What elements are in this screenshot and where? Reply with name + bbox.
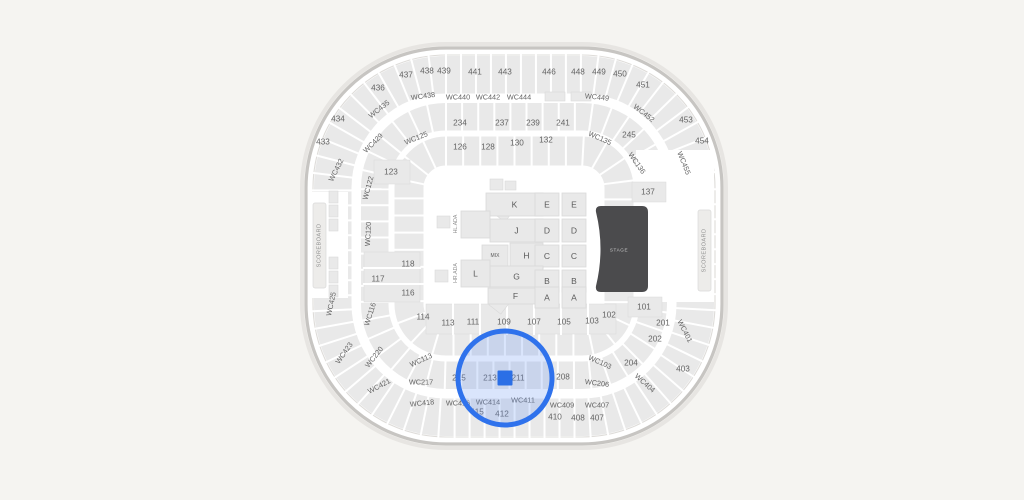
- suite-strip: [329, 271, 338, 283]
- section-label-102[interactable]: 102: [602, 311, 616, 320]
- floor-section-label: G: [513, 272, 520, 282]
- stage-label: STAGE: [610, 248, 628, 253]
- section-label-449[interactable]: 449: [592, 68, 606, 77]
- section-label-454[interactable]: 454: [695, 137, 709, 146]
- section-label-439[interactable]: 439: [437, 67, 451, 76]
- section-label-208[interactable]: 208: [556, 373, 570, 382]
- section-label-202[interactable]: 202: [648, 335, 662, 344]
- floor-section-C[interactable]: C: [562, 245, 586, 267]
- section-label-101[interactable]: 101: [637, 303, 651, 312]
- scoreboard-left-label: SCOREBOARD: [317, 224, 323, 268]
- section-label-113[interactable]: 113: [441, 319, 454, 328]
- floor-section-label: L: [473, 269, 478, 279]
- scoreboard-left: SCOREBOARD: [313, 203, 326, 288]
- ada-left-top-label: HL.ADA: [453, 214, 459, 233]
- suite-strip: [329, 205, 338, 217]
- section-label-118[interactable]: 118: [401, 260, 414, 269]
- floor-section-E[interactable]: E: [562, 193, 586, 216]
- section-label-450[interactable]: 450: [613, 70, 627, 79]
- arena-seatmap[interactable]: STAGE SCOREBOARD SCOREBOARD HL.ADA HR.AD…: [0, 0, 1024, 500]
- section-label-446[interactable]: 446: [542, 68, 556, 77]
- section-label-433[interactable]: 433: [316, 138, 330, 147]
- floor-section-label: D: [544, 226, 550, 236]
- section-label-438[interactable]: 438: [420, 67, 434, 76]
- section-label-WC442[interactable]: WC442: [476, 93, 500, 102]
- floor-section-D[interactable]: D: [535, 219, 559, 242]
- scoreboard-right-label: SCOREBOARD: [702, 229, 708, 273]
- section-label-WC444[interactable]: WC444: [507, 93, 531, 102]
- section-label-234[interactable]: 234: [453, 119, 467, 128]
- section-label-448[interactable]: 448: [571, 68, 585, 77]
- seatmap-canvas[interactable]: STAGE SCOREBOARD SCOREBOARD HL.ADA HR.AD…: [0, 0, 1024, 500]
- section-label-403[interactable]: 403: [676, 365, 690, 374]
- floor-section-C[interactable]: C: [535, 245, 559, 267]
- stage: STAGE: [596, 206, 648, 292]
- suite-strip: [437, 216, 450, 228]
- floor-section-E[interactable]: E: [535, 193, 559, 216]
- section-label-137[interactable]: 137: [641, 188, 655, 197]
- section-label-128[interactable]: 128: [481, 143, 495, 152]
- floor-section-label: E: [544, 200, 550, 210]
- section-label-WC407[interactable]: WC407: [585, 401, 609, 410]
- section-label-WC217[interactable]: WC217: [409, 378, 433, 387]
- section-label-WC120[interactable]: WC120: [363, 222, 373, 247]
- section-label-107[interactable]: 107: [527, 318, 541, 327]
- section-label-436[interactable]: 436: [371, 84, 385, 93]
- floor-section-label: D: [571, 226, 577, 236]
- floor-section-label: A: [571, 293, 577, 303]
- ada-left-bottom-label: HR.ADA: [453, 263, 459, 283]
- floor-section-label: K: [512, 200, 518, 210]
- section-label-239[interactable]: 239: [526, 119, 540, 128]
- floor-section-label: MIX: [491, 253, 501, 259]
- floor-section-label: C: [544, 251, 550, 261]
- section-label-123[interactable]: 123: [384, 168, 398, 177]
- section-label-111[interactable]: 111: [467, 318, 480, 327]
- section-label-WC409[interactable]: WC409: [550, 401, 574, 410]
- selected-section-marker[interactable]: [498, 371, 513, 386]
- floor-section-label: J: [514, 226, 518, 236]
- suite-strip: [505, 181, 516, 190]
- section-label-237[interactable]: 237: [495, 119, 509, 128]
- section-label-437[interactable]: 437: [399, 71, 413, 80]
- suite-strip: [329, 191, 338, 203]
- suite-strip: [545, 92, 565, 101]
- section-label-201[interactable]: 201: [656, 319, 670, 328]
- suite-strip: [490, 179, 503, 190]
- section-label-441[interactable]: 441: [468, 68, 482, 77]
- section-label-245[interactable]: 245: [622, 131, 636, 140]
- floor-section-A[interactable]: A: [562, 287, 586, 308]
- floor-section-label: A: [544, 293, 550, 303]
- section-label-408[interactable]: 408: [571, 414, 585, 423]
- section-label-126[interactable]: 126: [453, 143, 467, 152]
- section-label-451[interactable]: 451: [636, 81, 650, 90]
- floor-section-ada[interactable]: [461, 211, 490, 238]
- section-label-130[interactable]: 130: [510, 139, 524, 148]
- floor-section-label: C: [571, 251, 577, 261]
- floor-section-label: B: [571, 276, 577, 286]
- floor-section-label: E: [571, 200, 577, 210]
- section-label-241[interactable]: 241: [556, 119, 570, 128]
- section-label-103[interactable]: 103: [585, 317, 599, 326]
- floor-section-label: H: [523, 251, 529, 261]
- section-label-443[interactable]: 443: [498, 68, 512, 77]
- floor-section-label: F: [513, 291, 518, 301]
- floor-section-L[interactable]: L: [461, 260, 490, 287]
- section-label-434[interactable]: 434: [331, 115, 345, 124]
- suite-strip: [329, 219, 338, 231]
- floor-section-A[interactable]: A: [535, 287, 559, 308]
- section-label-114[interactable]: 114: [416, 313, 429, 322]
- section-label-204[interactable]: 204: [624, 359, 638, 368]
- scoreboard-right: SCOREBOARD: [698, 210, 711, 291]
- section-label-105[interactable]: 105: [557, 318, 571, 327]
- section-label-116[interactable]: 116: [401, 289, 414, 298]
- section-label-410[interactable]: 410: [548, 413, 562, 422]
- suite-strip: [435, 270, 448, 282]
- section-label-453[interactable]: 453: [679, 116, 693, 125]
- floor-section-D[interactable]: D: [562, 219, 586, 242]
- floor-section-label: B: [544, 276, 550, 286]
- section-label-407[interactable]: 407: [590, 414, 604, 423]
- section-label-132[interactable]: 132: [539, 136, 553, 145]
- suite-strip: [329, 257, 338, 269]
- floor-section-K[interactable]: K: [486, 193, 543, 216]
- section-label-109[interactable]: 109: [497, 318, 511, 327]
- section-label-WC440[interactable]: WC440: [446, 93, 470, 102]
- section-label-117[interactable]: 117: [371, 275, 384, 284]
